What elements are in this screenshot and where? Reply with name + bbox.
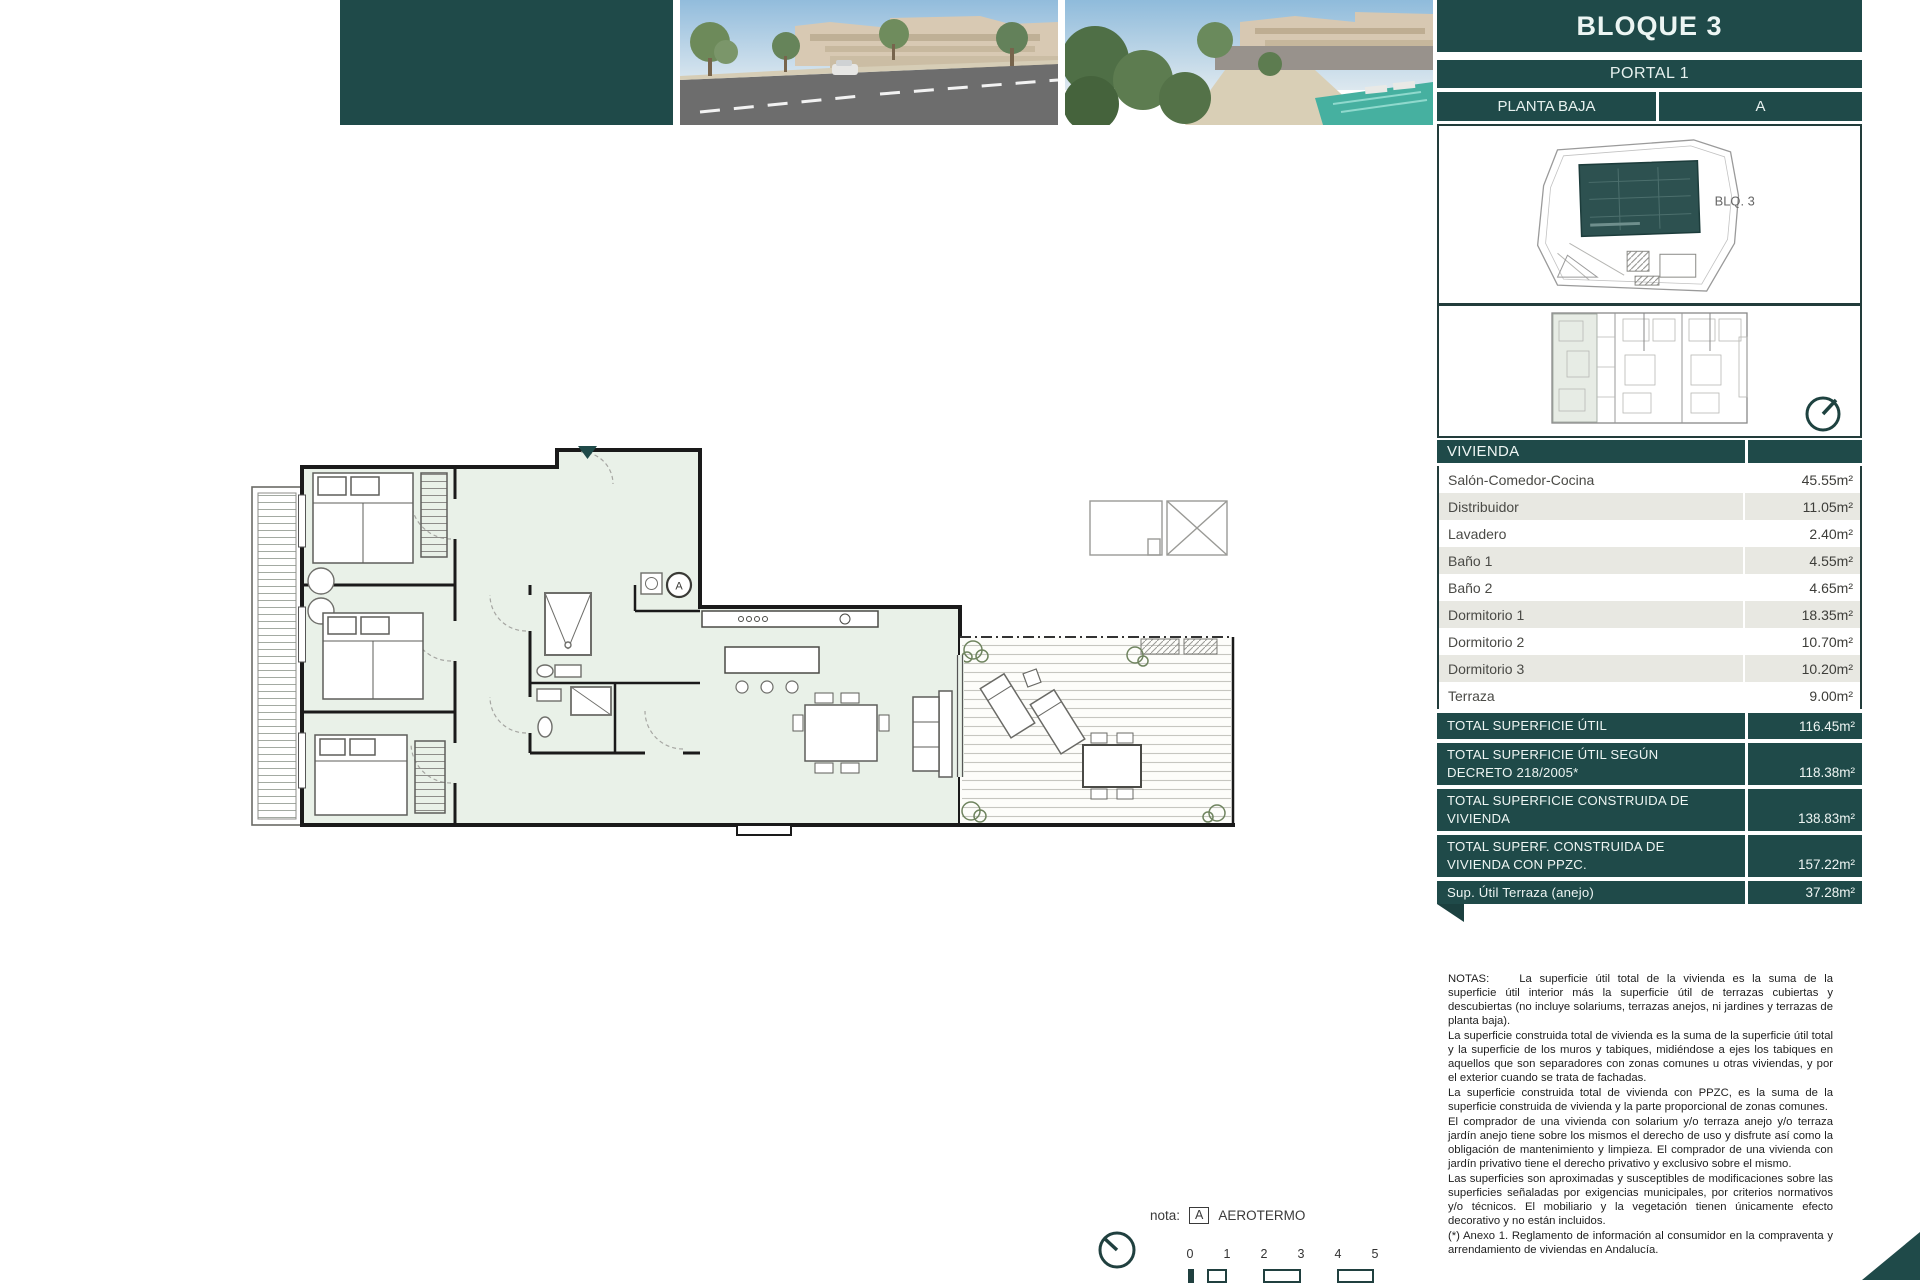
- highlighted-unit: [1553, 314, 1597, 422]
- block-title: BLOQUE 3: [1576, 11, 1722, 42]
- street-render-illustration: [680, 0, 1058, 125]
- notes-paragraph: La superficie construida total de vivien…: [1448, 1029, 1833, 1085]
- total-label: Sup. Útil Terraza (anejo): [1437, 881, 1745, 904]
- notes-paragraph: Las superficies son aproximadas y suscep…: [1448, 1172, 1833, 1228]
- area-row: Lavadero 2.40m²: [1439, 520, 1860, 547]
- room-area: 18.35m²: [1743, 601, 1860, 628]
- street-render-photo: [680, 0, 1058, 125]
- bedroom-2-furniture: [323, 613, 423, 699]
- north-arrow-icon: [1096, 1229, 1140, 1273]
- scale-tick-label: 0: [1182, 1247, 1198, 1261]
- page-corner-icon: [1862, 1232, 1920, 1280]
- exterior-step: [737, 825, 791, 835]
- total-row: TOTAL SUPERFICIE CONSTRUIDA DE VIVIENDA …: [1437, 789, 1862, 831]
- total-row: TOTAL SUPERFICIE ÚTIL 116.45m²: [1437, 713, 1862, 739]
- room-label: Dormitorio 2: [1439, 628, 1743, 655]
- room-label: Lavadero: [1439, 520, 1743, 547]
- room-label: Baño 1: [1439, 547, 1743, 574]
- scale-tick-label: 2: [1256, 1247, 1272, 1261]
- nota-label: nota:: [1150, 1208, 1180, 1223]
- total-row: TOTAL SUPERFICIE ÚTIL SEGÚN DECRETO 218/…: [1437, 743, 1862, 785]
- total-value: 138.83m²: [1745, 789, 1862, 831]
- area-table: Salón-Comedor-Cocina 45.55m² Distribuido…: [1437, 466, 1862, 709]
- unit-label: A: [1755, 98, 1765, 115]
- key-plan-panel: [1437, 306, 1862, 438]
- room-area: 9.00m²: [1743, 682, 1860, 709]
- room-area: 4.65m²: [1743, 574, 1860, 601]
- plan-sheet: { "colors": { "teal": "#1f4a49", "row_al…: [0, 0, 1920, 1280]
- area-row: Baño 1 4.55m²: [1439, 547, 1860, 574]
- scale-bar-segment: [1263, 1269, 1301, 1283]
- table-header-value-cell: [1745, 440, 1862, 463]
- notes-paragraph: La superficie construida total de vivien…: [1448, 1086, 1833, 1114]
- site-block-label: BLQ. 3: [1715, 194, 1755, 209]
- scale-tick-label: 4: [1330, 1247, 1346, 1261]
- unit-cell: A: [1659, 92, 1862, 121]
- block-title-header: BLOQUE 3: [1437, 0, 1862, 52]
- notes-title: NOTAS:: [1448, 972, 1489, 986]
- scale-bar-segment: [1207, 1269, 1227, 1283]
- pool-render-photo: [1065, 0, 1433, 125]
- room-label: Terraza: [1439, 682, 1743, 709]
- total-label: TOTAL SUPERFICIE ÚTIL SEGÚN DECRETO 218/…: [1437, 743, 1745, 785]
- area-row: Distribuidor 11.05m²: [1439, 493, 1860, 520]
- area-row: Dormitorio 1 18.35m²: [1439, 601, 1860, 628]
- table-header-row: VIVIENDA: [1437, 440, 1862, 463]
- area-row: Baño 2 4.65m²: [1439, 574, 1860, 601]
- site-plan-panel: BLQ. 3: [1437, 124, 1862, 306]
- bedroom-3-furniture: [315, 735, 445, 815]
- north-arrow-icon: [1807, 398, 1839, 430]
- room-label: Dormitorio 3: [1439, 655, 1743, 682]
- area-row: Dormitorio 3 10.20m²: [1439, 655, 1860, 682]
- aerotermo-label: AEROTERMO: [1218, 1208, 1305, 1223]
- total-label: TOTAL SUPERFICIE ÚTIL: [1437, 713, 1745, 739]
- total-label: TOTAL SUPERFICIE CONSTRUIDA DE VIVIENDA: [1437, 789, 1745, 831]
- room-label: Dormitorio 1: [1439, 601, 1743, 628]
- svg-text:A: A: [675, 581, 683, 593]
- room-area: 45.55m²: [1743, 466, 1860, 493]
- room-area: 4.55m²: [1743, 547, 1860, 574]
- aerotermo-icon: A: [667, 573, 691, 597]
- room-label: Baño 2: [1439, 574, 1743, 601]
- notes-block: NOTAS:La superficie útil total de la viv…: [1448, 972, 1833, 1258]
- area-row: Terraza 9.00m²: [1439, 682, 1860, 709]
- portal-label: PORTAL 1: [1610, 65, 1689, 83]
- total-value: 118.38m²: [1745, 743, 1862, 785]
- aerotermo-legend: nota: A AEROTERMO: [1150, 1205, 1305, 1225]
- floor-label: PLANTA BAJA: [1497, 98, 1595, 115]
- room-area: 10.70m²: [1743, 628, 1860, 655]
- scale-tick-label: 3: [1293, 1247, 1309, 1261]
- key-plan-drawing: [1439, 306, 1860, 436]
- total-value: 37.28m²: [1745, 881, 1862, 904]
- terrace-area: [960, 637, 1235, 825]
- portal-header: PORTAL 1: [1437, 60, 1862, 88]
- scale-tick-label: 5: [1367, 1247, 1383, 1261]
- room-area: 2.40m²: [1743, 520, 1860, 547]
- room-label: Distribuidor: [1439, 493, 1743, 520]
- total-value: 116.45m²: [1745, 713, 1862, 739]
- aerotermo-symbol-box: A: [1189, 1207, 1209, 1224]
- floor-plan-drawing: A: [245, 443, 1245, 843]
- total-value: 157.22m²: [1745, 835, 1862, 877]
- bedroom-1-furniture: [313, 473, 447, 563]
- area-row: Salón-Comedor-Cocina 45.55m²: [1439, 466, 1860, 493]
- table-corner-fold-icon: [1437, 904, 1464, 922]
- total-row: Sup. Útil Terraza (anejo) 37.28m²: [1437, 881, 1862, 904]
- table-header-label: VIVIENDA: [1437, 440, 1745, 463]
- highlighted-block: [1579, 161, 1700, 237]
- scale-tick-label: 1: [1219, 1247, 1235, 1261]
- area-row: Dormitorio 2 10.70m²: [1439, 628, 1860, 655]
- sofa: [913, 691, 952, 777]
- brand-color-block: [340, 0, 673, 125]
- dining-furniture: [793, 693, 889, 773]
- notes-paragraph: (*) Anexo 1. Reglamento de información a…: [1448, 1229, 1833, 1257]
- scale-bar-segment: [1337, 1269, 1374, 1283]
- side-terrace-strip: [252, 487, 302, 825]
- room-area: 10.20m²: [1743, 655, 1860, 682]
- room-area: 11.05m²: [1743, 493, 1860, 520]
- pool-render-illustration: [1065, 0, 1433, 125]
- scale-bar-segment: [1188, 1269, 1194, 1283]
- total-row: TOTAL SUPERF. CONSTRUIDA DE VIVIENDA CON…: [1437, 835, 1862, 877]
- pergola-outline: [1090, 501, 1227, 555]
- total-label: TOTAL SUPERF. CONSTRUIDA DE VIVIENDA CON…: [1437, 835, 1745, 877]
- window-openings: [299, 495, 306, 788]
- floor-cell: PLANTA BAJA: [1437, 92, 1656, 121]
- room-label: Salón-Comedor-Cocina: [1439, 466, 1743, 493]
- notes-paragraph: El comprador de una vivienda con solariu…: [1448, 1115, 1833, 1171]
- notes-paragraph: NOTAS:La superficie útil total de la viv…: [1448, 972, 1833, 1028]
- site-plan-drawing: BLQ. 3: [1439, 126, 1860, 303]
